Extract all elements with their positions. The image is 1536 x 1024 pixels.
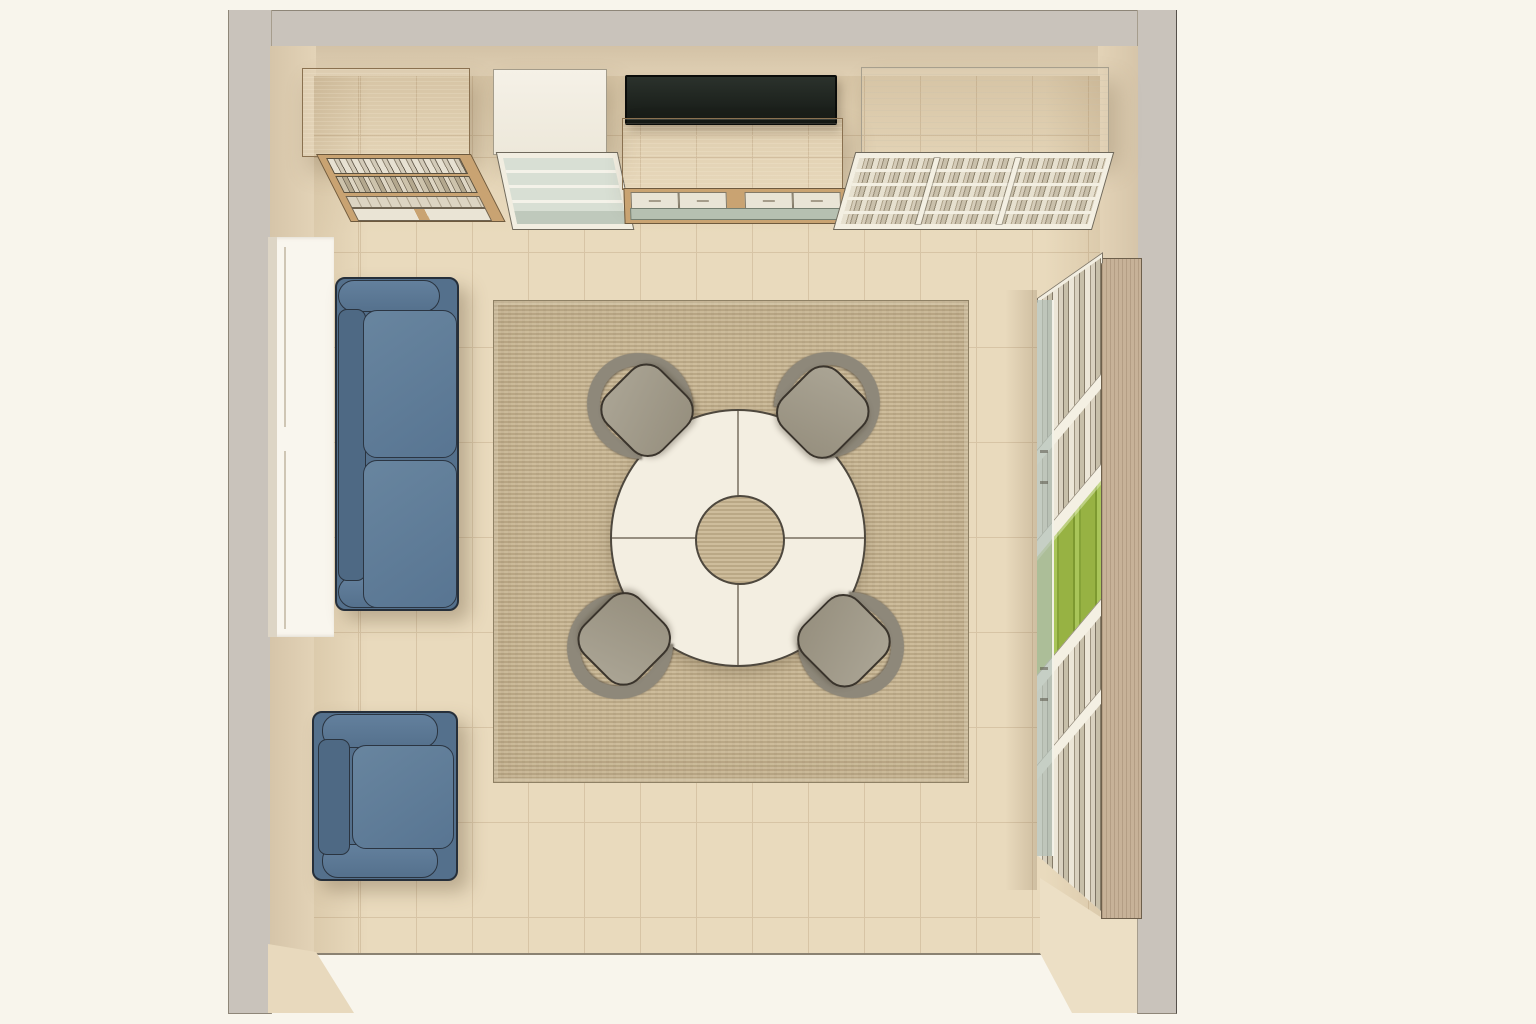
shelf-mullion xyxy=(916,158,940,224)
shelf-label-mark xyxy=(1040,481,1048,484)
window-sash-line xyxy=(284,451,286,629)
sofa-cushion xyxy=(363,460,457,608)
wall-right xyxy=(1137,10,1177,1014)
shelf-label-mark xyxy=(1040,698,1048,701)
book-row xyxy=(335,176,478,193)
table-center-opening xyxy=(695,495,785,585)
glass-cabinet-top xyxy=(493,69,607,155)
tall-shelf-glass-door xyxy=(1037,300,1054,856)
shelf-label-mark xyxy=(1040,450,1048,453)
white-bookshelf-front xyxy=(834,153,1113,229)
shelf-mullion xyxy=(997,158,1021,224)
window xyxy=(268,237,334,637)
sofa-cushion xyxy=(363,310,457,458)
room-render xyxy=(0,0,1536,1024)
white-bookshelf-top xyxy=(861,67,1109,155)
window-jamb xyxy=(268,237,277,637)
armchair-backrest xyxy=(318,739,350,855)
media-console-top xyxy=(622,118,843,190)
sofa-armrest-top xyxy=(338,280,440,312)
window-sash-line xyxy=(284,247,286,427)
wood-bookshelf-top xyxy=(302,68,470,157)
book-row xyxy=(345,196,485,208)
magazine-files xyxy=(352,208,493,221)
armchair xyxy=(312,711,458,881)
tall-shelf-wood-side xyxy=(1101,258,1142,919)
armchair-cushion xyxy=(352,745,454,849)
console-glass-shelf xyxy=(630,208,840,220)
glass-cabinet-front xyxy=(497,153,633,229)
shelf-label-mark xyxy=(1040,667,1048,670)
media-console-front xyxy=(623,188,846,224)
wall-left xyxy=(228,10,272,1014)
sofa-backrest xyxy=(338,309,366,581)
shelf-floor-shadow xyxy=(1005,290,1037,890)
wall-top xyxy=(228,10,1175,48)
sofa xyxy=(335,277,459,611)
book-row xyxy=(326,158,468,174)
